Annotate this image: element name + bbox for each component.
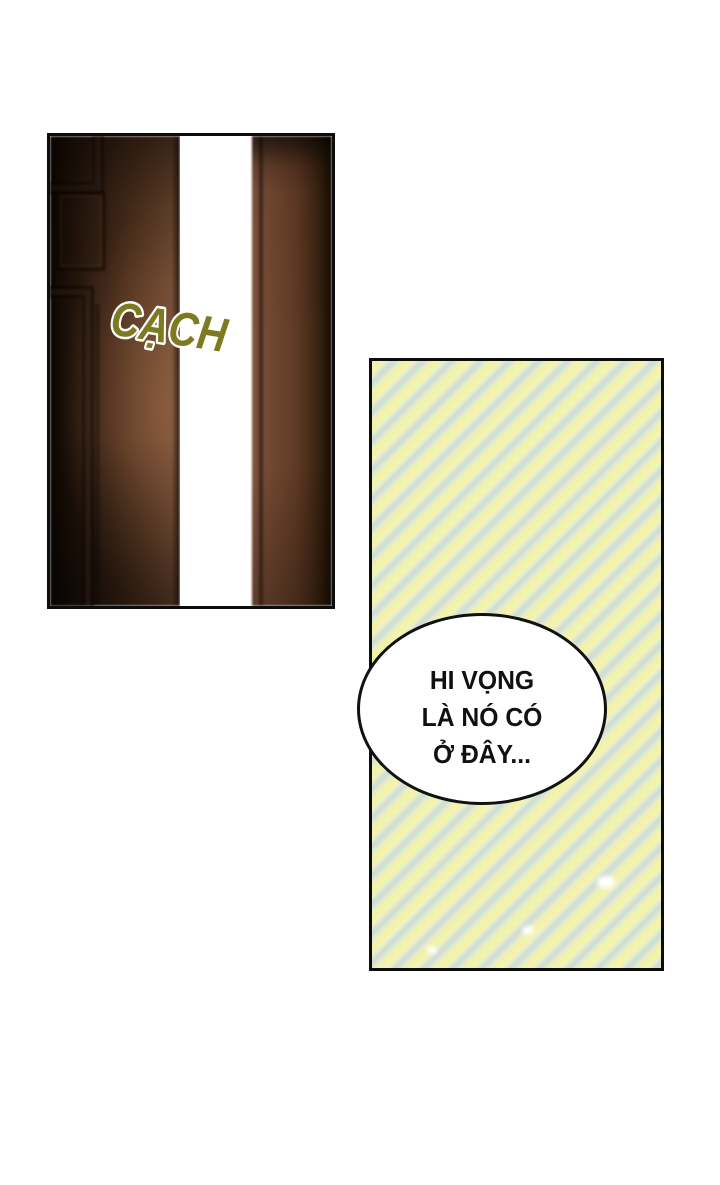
- svg-text:CẠCH: CẠCH: [107, 292, 231, 363]
